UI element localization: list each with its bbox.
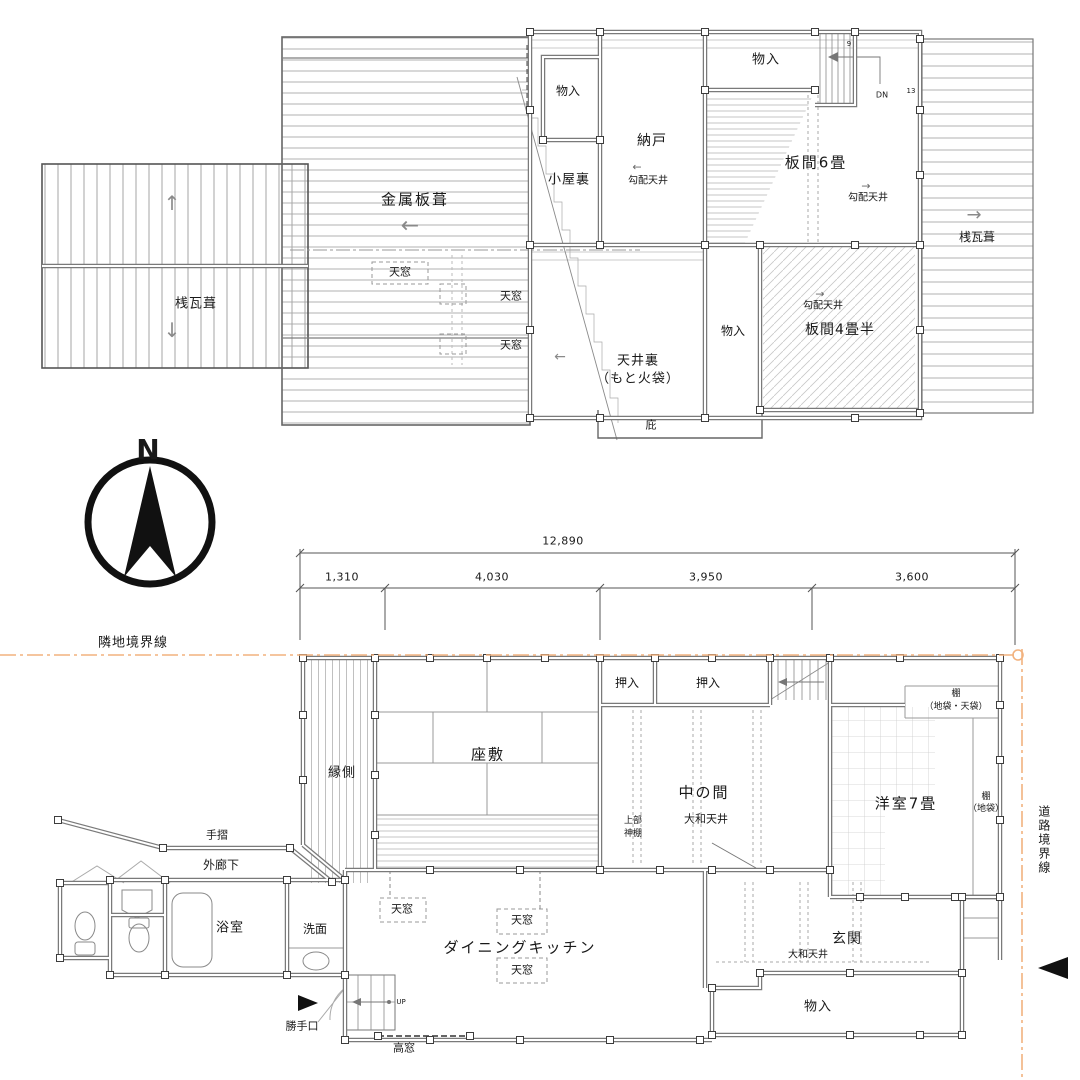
label-outer-corridor: 外廊下 [203,859,239,873]
arrow-left-icon: ← [554,349,566,365]
dim-seg2: 4,030 [475,572,509,585]
arrow-right-icon: → [966,205,981,226]
label-oshiire-1: 押入 [615,677,639,691]
label-entrance: 玄関 [832,931,862,947]
label-shelf-right-sub: （地袋） [968,804,1004,814]
label-dk-skylight-1: 天窓 [391,904,413,917]
label-closet-top: 物入 [752,54,780,69]
label-board-room-45: 板間4畳半 [805,322,875,338]
label-handrail: 手摺 [206,830,228,843]
label-oshiire-2: 押入 [696,677,720,691]
label-shelf-top-sub: （地袋・天袋） [924,702,987,712]
label-closet-mid: 物入 [721,325,745,339]
entrance-marker [1038,957,1068,979]
label-stairs-dn: DN [876,90,888,99]
label-ceiling-space: 天井裏 [617,355,659,370]
label-stairs-up: UP [396,998,405,1006]
floor-plan-drawing [0,0,1080,1080]
label-attic: 小屋裏 [548,174,590,189]
compass [88,460,212,584]
label-bathroom: 浴室 [216,922,244,937]
label-high-window: 高窓 [393,1043,415,1056]
label-roof-skylight-1: 天窓 [389,267,411,280]
compass-north-label: N [136,434,159,466]
arrow-right-icon: → [861,180,870,193]
dim-seg4: 3,600 [895,572,929,585]
label-sloped-ceiling-6: 勾配天井 [848,192,888,204]
label-board-room-6: 板間6畳 [785,154,848,171]
label-ceiling-space-sub: （もと火袋） [596,373,680,388]
label-kamidana-1: 上部 [624,816,642,826]
arrow-left-icon: ← [401,214,419,239]
label-sloped-ceiling-45: 勾配天井 [803,300,843,312]
label-dining-kitchen: ダイニングキッチン [443,939,596,956]
arrow-down-icon: ↓ [164,318,181,342]
label-western-room: 洋室7畳 [875,795,938,812]
label-storeroom: 納戸 [637,133,667,149]
label-storage-bottom: 物入 [804,1001,832,1016]
label-shelf-top: 棚 [951,689,960,699]
label-stair-num-top: 9 [847,40,851,48]
label-road-boundary: 道路境界線 [1036,805,1050,875]
label-stair-num-right: 13 [907,87,916,95]
arrow-right-icon: → [815,288,824,301]
label-yamato-ceiling-middle: 大和天井 [684,814,728,827]
hatch-fills [42,37,1033,897]
label-zashiki: 座敷 [471,746,505,763]
label-roof-skylight-2: 天窓 [500,291,522,304]
label-eave: 庇 [646,420,657,433]
label-middle-room: 中の間 [678,784,729,801]
dim-total: 12,890 [542,536,584,549]
dim-seg3: 3,950 [689,572,723,585]
floor-plan-page: 金属板葺 ← 桟瓦葺 ↑ ↓ 桟瓦葺 → 天窓 天窓 天窓 物入 小屋裏 納戸 … [0,0,1080,1080]
label-adjacent-boundary: 隣地境界線 [98,637,168,652]
label-washroom: 洗面 [303,923,327,937]
dim-seg1: 1,310 [325,572,359,585]
back-door-marker [298,995,318,1011]
label-roof-skylight-3: 天窓 [500,340,522,353]
label-sloped-ceiling-storeroom: 勾配天井 [628,175,668,187]
arrow-left-icon: ← [632,161,641,174]
label-back-door: 勝手口 [286,1021,319,1034]
label-yamato-ceiling-entrance: 大和天井 [788,949,828,961]
label-dk-skylight-3: 天窓 [511,965,533,978]
label-metal-roof: 金属板葺 [381,191,449,208]
label-tile-roof-left: 桟瓦葺 [175,298,217,313]
label-shelf-right: 棚 [981,792,990,802]
arrow-up-icon: ↑ [164,191,181,215]
label-dk-skylight-2: 天窓 [511,915,533,928]
label-closet-top-left: 物入 [556,85,580,99]
dimension-lines [296,549,1019,645]
label-veranda: 縁側 [328,767,356,782]
label-tile-roof-right: 桟瓦葺 [959,231,995,245]
label-kamidana-2: 神棚 [624,829,642,839]
